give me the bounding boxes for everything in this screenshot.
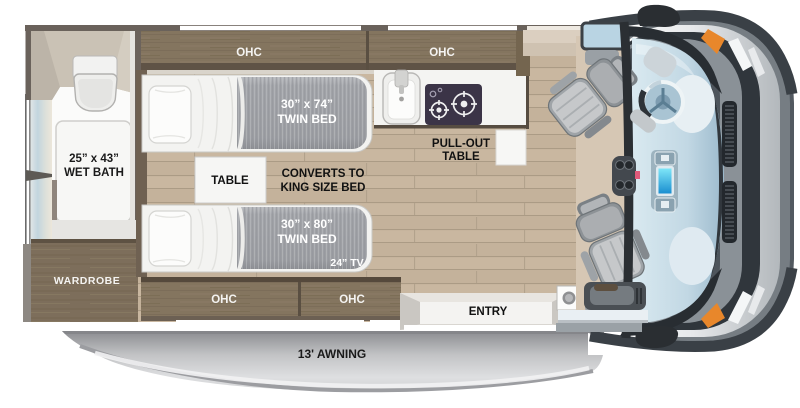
svg-text:30” x 74”: 30” x 74” <box>281 97 333 111</box>
svg-text:13' AWNING: 13' AWNING <box>298 347 366 361</box>
svg-text:TWIN BED: TWIN BED <box>277 112 337 126</box>
svg-text:OHC: OHC <box>429 47 455 59</box>
svg-text:OHC: OHC <box>236 47 262 59</box>
svg-text:KING SIZE BED: KING SIZE BED <box>281 182 366 194</box>
svg-text:TWIN BED: TWIN BED <box>277 232 337 246</box>
svg-text:WARDROBE: WARDROBE <box>54 275 120 287</box>
svg-text:PULL-OUT: PULL-OUT <box>432 138 490 150</box>
svg-text:TABLE: TABLE <box>442 151 480 163</box>
svg-text:ENTRY: ENTRY <box>469 306 508 318</box>
svg-text:OHC: OHC <box>339 294 365 306</box>
svg-text:24” TV: 24” TV <box>330 257 363 269</box>
svg-text:25” x 43”: 25” x 43” <box>69 153 119 165</box>
svg-text:TABLE: TABLE <box>211 175 249 187</box>
svg-text:30” x 80”: 30” x 80” <box>281 217 333 231</box>
svg-text:CONVERTS TO: CONVERTS TO <box>282 168 365 180</box>
svg-text:OHC: OHC <box>211 294 237 306</box>
svg-text:WET BATH: WET BATH <box>64 167 124 179</box>
